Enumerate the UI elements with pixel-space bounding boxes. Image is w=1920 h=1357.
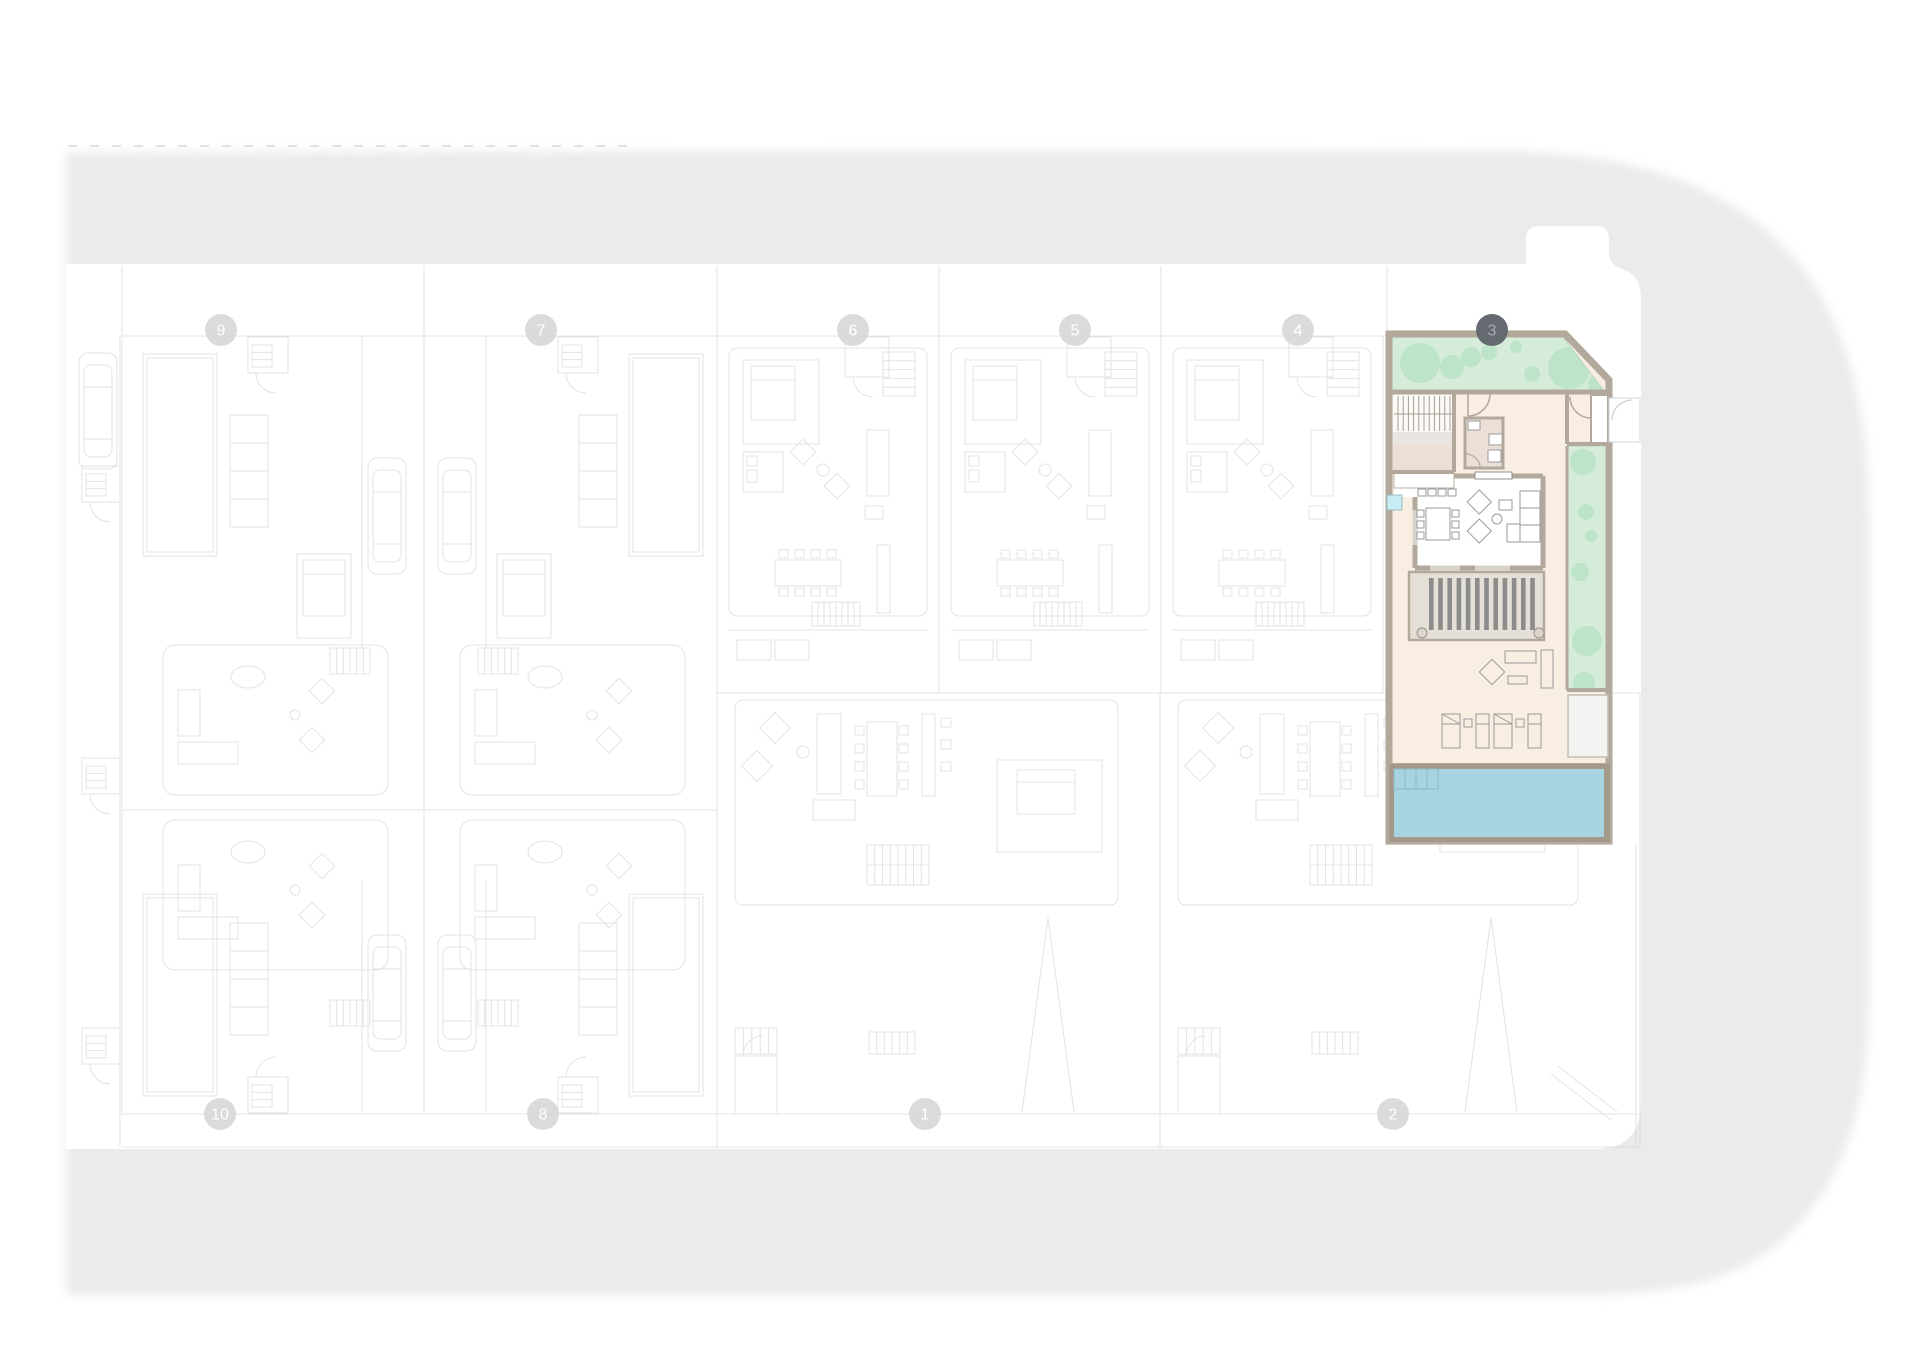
unit3-utility-room (1392, 445, 1454, 472)
plot-marker-4[interactable]: 4 (1282, 314, 1314, 346)
plot-marker-5[interactable]: 5 (1059, 314, 1091, 346)
plot-marker-label: 5 (1071, 323, 1080, 340)
unit3-storage-closet (1591, 395, 1608, 443)
plot-marker-3[interactable]: 3 (1476, 314, 1508, 346)
unit3-side-deck (1568, 695, 1608, 757)
plot-marker-7[interactable]: 7 (525, 314, 557, 346)
plot-marker-9[interactable]: 9 (205, 314, 237, 346)
site-plan-stage: 97654310812 (0, 0, 1920, 1357)
unit3-toilet (1468, 421, 1480, 430)
plot-marker-6[interactable]: 6 (837, 314, 869, 346)
unit3-pergola (1409, 572, 1544, 640)
site-plan-svg: 97654310812 (0, 0, 1920, 1357)
plot-marker-10[interactable]: 10 (204, 1098, 236, 1130)
unit3-staircase (1394, 396, 1454, 431)
unit3-stair-landing (1392, 432, 1454, 445)
plot-marker-label: 10 (211, 1107, 229, 1124)
plot-marker-1[interactable]: 1 (909, 1098, 941, 1130)
unit3-kitchen-counter (1394, 473, 1454, 488)
unit3-sink (1489, 434, 1502, 445)
unit3-tv-bench (1475, 472, 1512, 479)
highlighted-unit-3[interactable] (1386, 330, 1640, 845)
plot-marker-label: 4 (1294, 323, 1303, 340)
unit3-outdoor-shower (1387, 495, 1402, 510)
plot-marker-label: 1 (921, 1107, 930, 1124)
unit3-side-entry (1609, 398, 1640, 442)
plot-marker-8[interactable]: 8 (527, 1098, 559, 1130)
plot-marker-label: 9 (217, 323, 226, 340)
unit3-swimming-pool (1389, 764, 1610, 842)
unit3-dining-set (1417, 508, 1459, 540)
unit3-shower (1488, 450, 1501, 462)
plot-marker-label: 3 (1488, 323, 1497, 340)
plot-marker-label: 8 (539, 1107, 548, 1124)
plot-marker-label: 7 (537, 323, 546, 340)
plot-marker-2[interactable]: 2 (1377, 1098, 1409, 1130)
plot-marker-label: 6 (849, 323, 858, 340)
plot-marker-label: 2 (1389, 1107, 1398, 1124)
